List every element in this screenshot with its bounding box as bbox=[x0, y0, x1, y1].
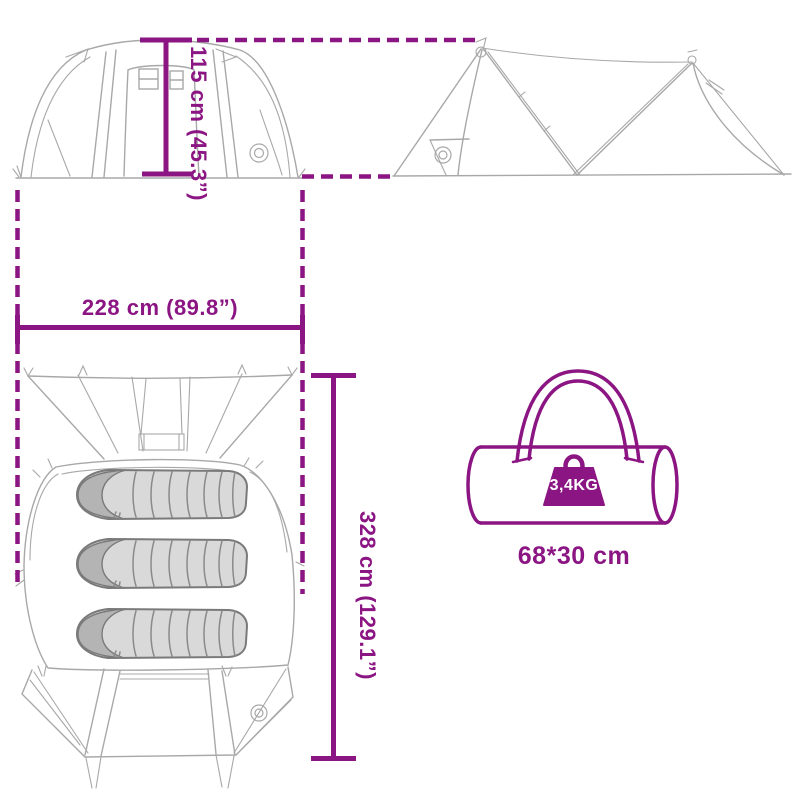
depth-dimension-label: 328 cm (129.1”) bbox=[354, 511, 380, 680]
tent-peak-knot-icon bbox=[476, 38, 697, 64]
tent-top-view-drawing bbox=[15, 365, 304, 788]
bag-weight-label: 3,4KG bbox=[524, 477, 624, 495]
width-dimension-label: 228 cm (89.8”) bbox=[55, 295, 265, 321]
front-door-window-icon bbox=[139, 69, 183, 89]
sleeping-bag-icon bbox=[77, 539, 247, 588]
sleeping-bag-icon bbox=[77, 609, 247, 658]
depth-dimension-line bbox=[311, 376, 356, 759]
tent-dimensions-illustration bbox=[0, 0, 800, 800]
height-dimension-label: 115 cm (45.3”) bbox=[185, 46, 211, 201]
bag-size-label: 68*30 cm bbox=[474, 542, 674, 571]
tent-side-view-drawing bbox=[393, 38, 791, 176]
product-dimension-diagram: 115 cm (45.3”) 228 cm (89.8”) 328 cm (12… bbox=[0, 0, 800, 800]
brand-logo-icon bbox=[250, 144, 268, 162]
tent-front-view-drawing bbox=[13, 40, 305, 178]
sleeping-bag-icon bbox=[77, 470, 247, 519]
carry-bag-icon bbox=[468, 371, 677, 523]
